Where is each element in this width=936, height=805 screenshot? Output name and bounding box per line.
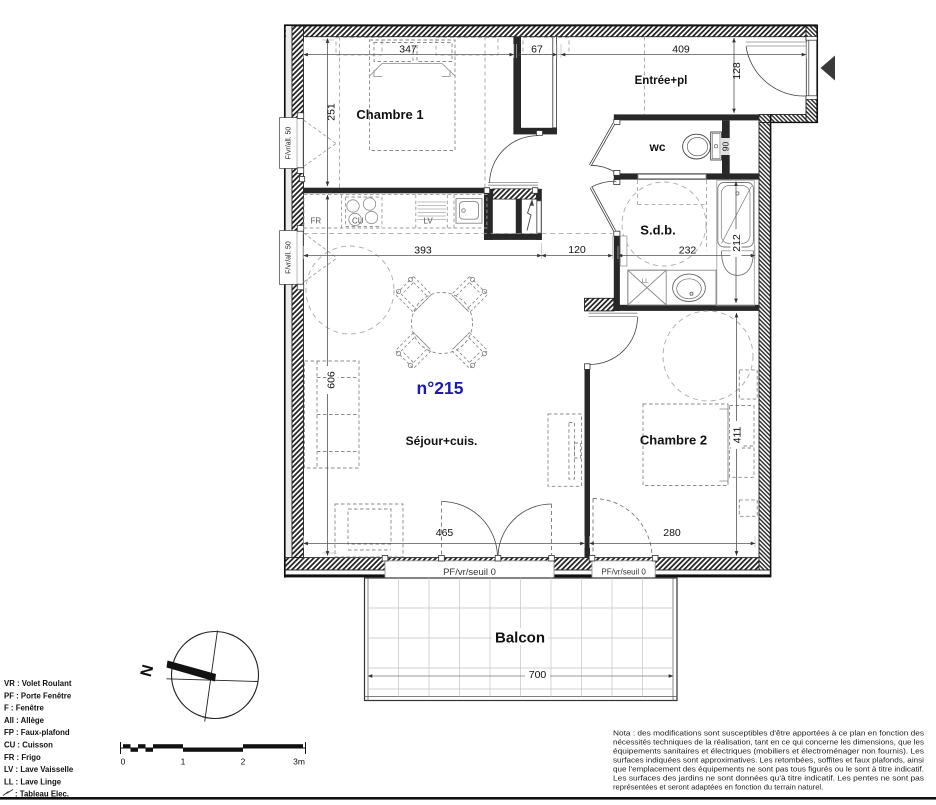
svg-text:LV: LV [424, 217, 434, 226]
svg-text:0: 0 [121, 757, 126, 767]
svg-text:465: 465 [436, 527, 454, 539]
svg-text:PF/vr/seuil 0: PF/vr/seuil 0 [601, 568, 646, 577]
svg-text:3m: 3m [293, 757, 305, 767]
svg-text:Chambre 2: Chambre 2 [640, 433, 707, 448]
svg-text:128: 128 [731, 62, 743, 80]
svg-text:surfaces indiquées sont approx: surfaces indiquées sont approximatives. … [613, 756, 924, 765]
svg-text:Balcon: Balcon [495, 630, 545, 647]
svg-text:411: 411 [732, 426, 744, 443]
svg-text:232: 232 [679, 244, 697, 256]
svg-text:VR : Volet Roulant: VR : Volet Roulant [4, 679, 72, 688]
svg-text:67: 67 [531, 43, 543, 55]
svg-text:606: 606 [326, 371, 338, 389]
svg-text:Nota : des modifications sont: Nota : des modifications sont susceptibl… [613, 729, 924, 738]
svg-text:S.d.b.: S.d.b. [640, 223, 675, 238]
svg-text:F/vr/all. 50: F/vr/all. 50 [286, 241, 293, 274]
svg-text:CU : Cuisson: CU : Cuisson [4, 741, 53, 750]
svg-text:représentées et seront adaptée: représentées et seront adaptées en fonct… [613, 783, 823, 792]
svg-text:1: 1 [181, 757, 186, 767]
svg-text:FR: FR [311, 217, 322, 226]
svg-text:FP : Faux-plafond: FP : Faux-plafond [4, 728, 70, 737]
svg-text:90: 90 [721, 142, 731, 152]
svg-text:LV : Lave Vaisselle: LV : Lave Vaisselle [4, 765, 74, 774]
svg-text:nécessités techniques de la ré: nécessités techniques de la réalisation,… [613, 738, 924, 747]
svg-text:CU: CU [352, 217, 364, 226]
svg-text:équipements sanitaires et élec: équipements sanitaires et électriques (m… [613, 747, 924, 756]
svg-text:F : Fenêtre: F : Fenêtre [4, 704, 45, 713]
svg-text:n°215: n°215 [417, 378, 464, 398]
svg-text:2: 2 [241, 757, 246, 767]
svg-text:Chambre 1: Chambre 1 [356, 107, 423, 122]
svg-text:120: 120 [568, 244, 586, 256]
svg-text:409: 409 [672, 43, 690, 55]
svg-text:PF : Porte Fenêtre: PF : Porte Fenêtre [4, 691, 72, 700]
svg-text:PF/vr/seuil 0: PF/vr/seuil 0 [443, 567, 496, 578]
svg-text:wc: wc [648, 140, 665, 154]
svg-text:Entrée+pl: Entrée+pl [635, 75, 688, 87]
svg-text:212: 212 [731, 234, 743, 252]
svg-text:LL: LL [642, 278, 650, 285]
svg-text:Les surfaces des jardins ne so: Les surfaces des jardins ne sont données… [613, 774, 924, 783]
svg-text:347: 347 [399, 43, 417, 55]
svg-text:All : Allège: All : Allège [4, 716, 45, 725]
svg-text:FR : Frigo: FR : Frigo [4, 753, 41, 762]
svg-text:280: 280 [663, 527, 681, 539]
svg-text:Séjour+cuis.: Séjour+cuis. [406, 434, 478, 448]
svg-text:que l'emplacement des équipeme: que l'emplacement des équipements ne son… [613, 765, 924, 774]
svg-text:LL : Lave Linge: LL : Lave Linge [4, 777, 62, 786]
svg-text:700: 700 [529, 669, 547, 681]
svg-text:251: 251 [326, 103, 338, 121]
svg-text:F/vr/all. 50: F/vr/all. 50 [286, 127, 293, 160]
svg-text:393: 393 [414, 244, 432, 256]
